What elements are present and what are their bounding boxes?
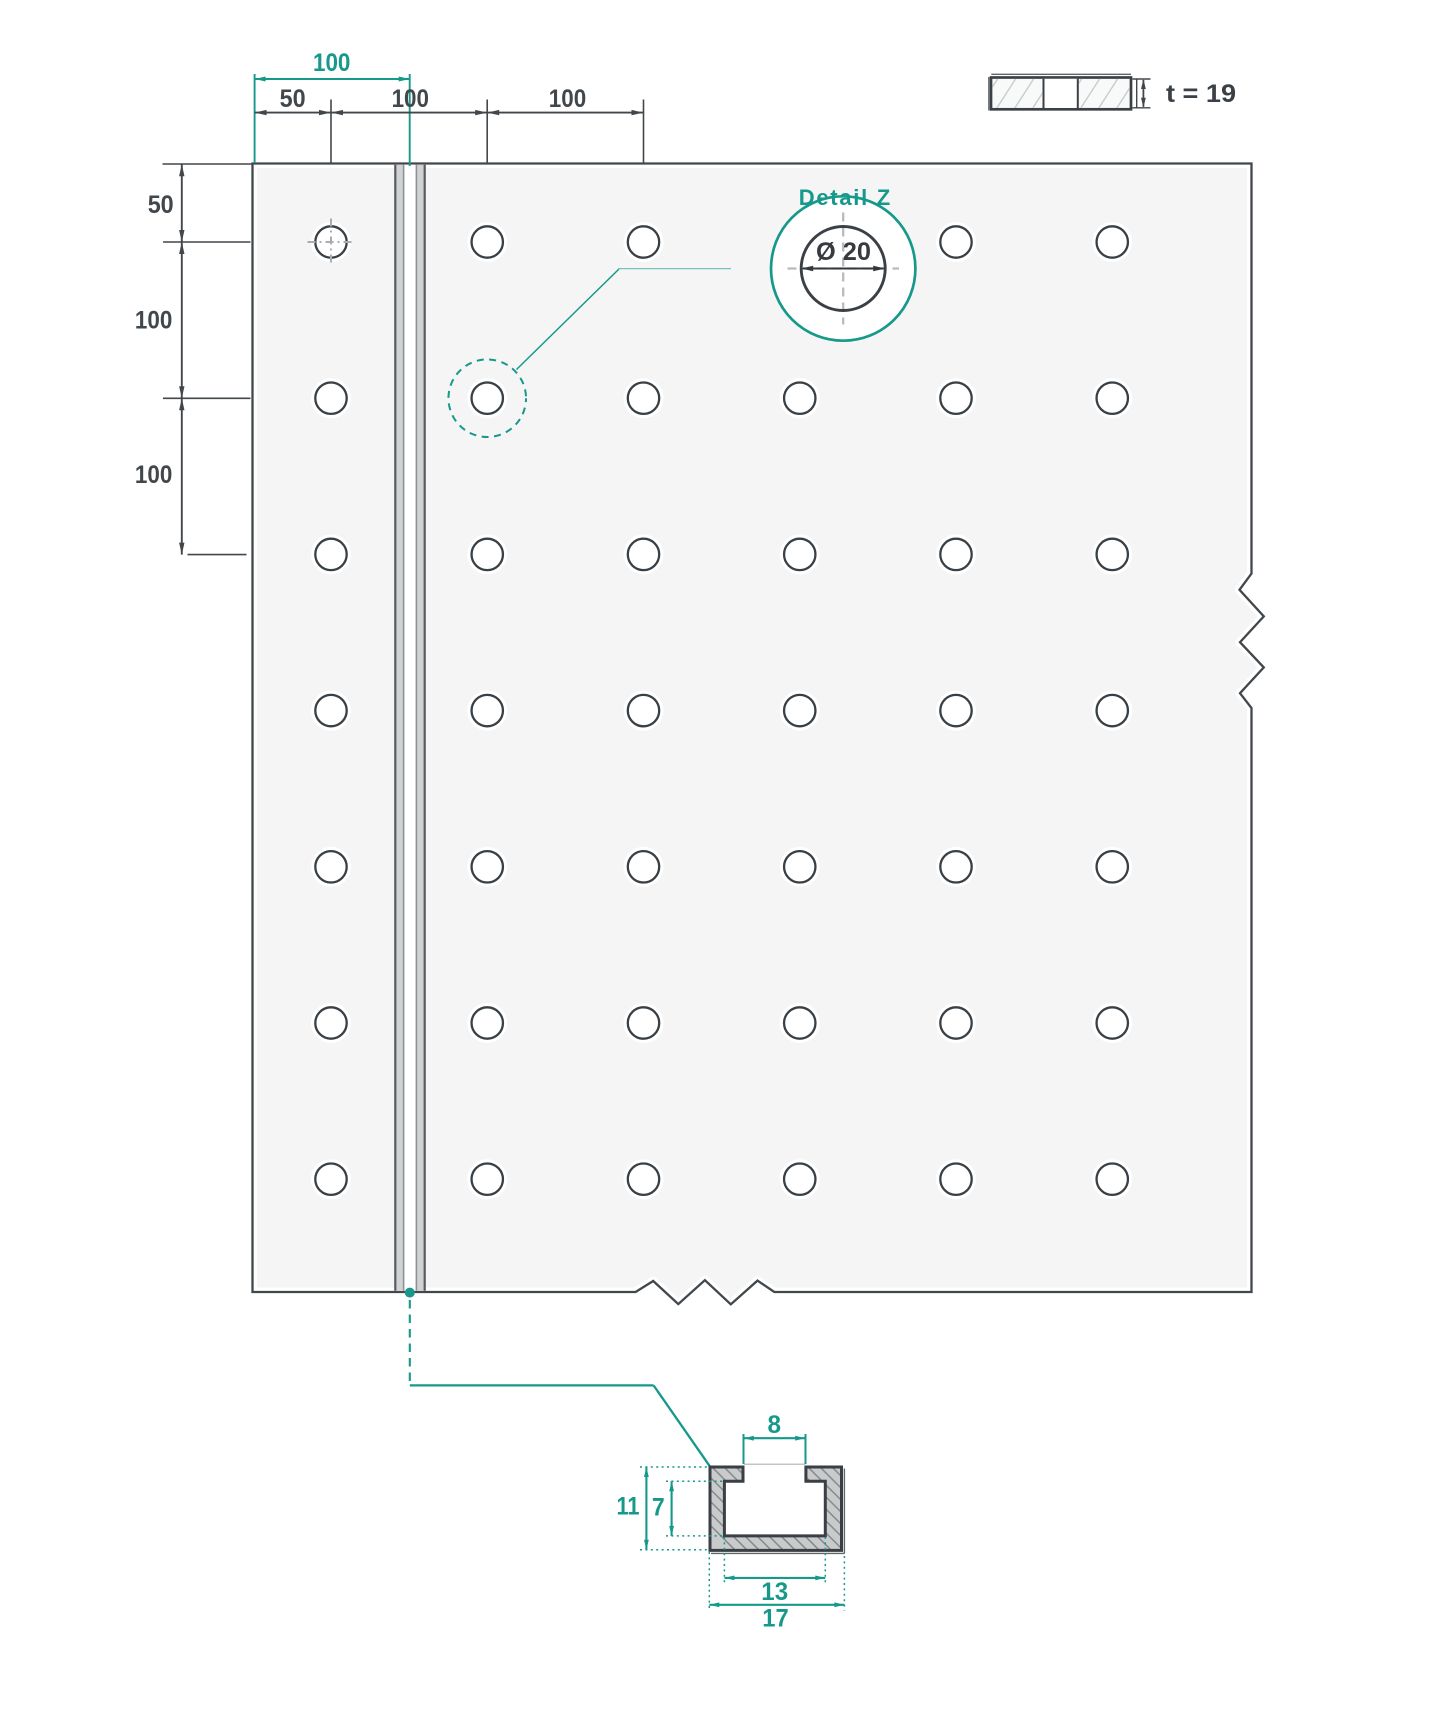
svg-text:17: 17 xyxy=(762,1605,788,1633)
svg-text:Ø 20: Ø 20 xyxy=(816,238,871,266)
svg-text:7: 7 xyxy=(652,1494,665,1522)
svg-text:Detail Z: Detail Z xyxy=(799,185,891,210)
svg-text:50: 50 xyxy=(280,85,306,113)
svg-text:100: 100 xyxy=(549,85,586,113)
svg-text:11: 11 xyxy=(617,1492,640,1520)
svg-text:100: 100 xyxy=(135,306,172,334)
svg-text:100: 100 xyxy=(313,49,350,77)
svg-text:50: 50 xyxy=(148,191,174,219)
svg-text:100: 100 xyxy=(392,85,429,113)
svg-text:8: 8 xyxy=(767,1411,781,1439)
svg-text:13: 13 xyxy=(761,1578,788,1606)
svg-text:100: 100 xyxy=(135,461,172,489)
svg-text:t = 19: t = 19 xyxy=(1166,80,1236,108)
